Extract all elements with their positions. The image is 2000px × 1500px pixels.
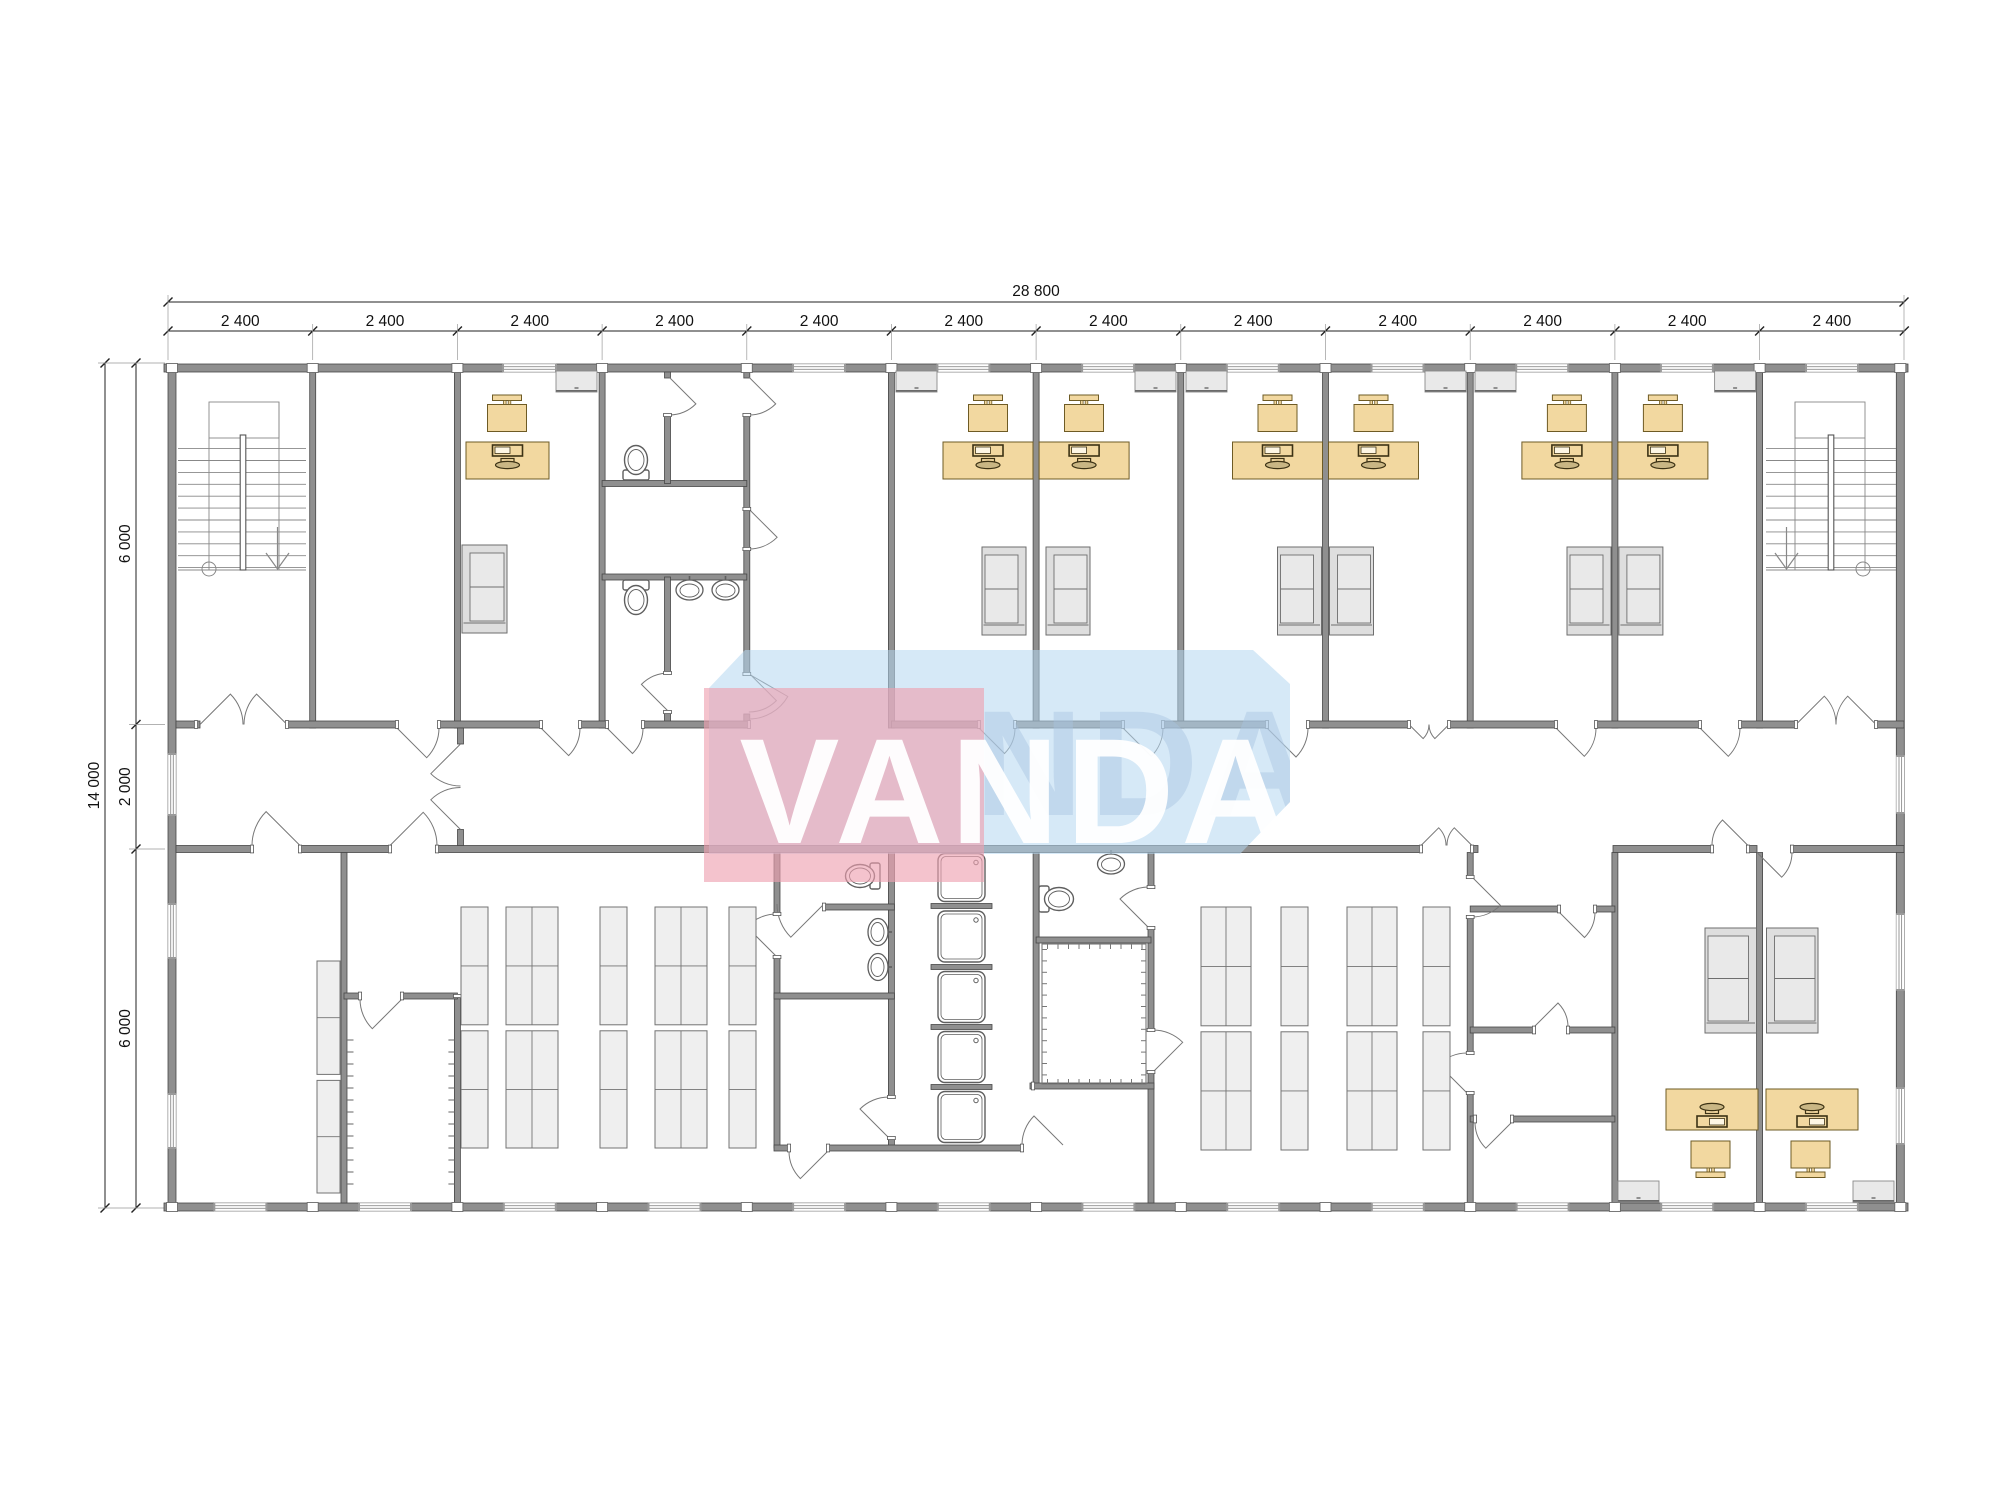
svg-text:2 400: 2 400 [221,313,260,330]
svg-text:2 400: 2 400 [1813,313,1852,330]
svg-text:2 400: 2 400 [655,313,694,330]
svg-text:2 000: 2 000 [117,767,134,806]
svg-text:6 000: 6 000 [117,1009,134,1048]
svg-text:2 400: 2 400 [1523,313,1562,330]
svg-text:2 400: 2 400 [944,313,983,330]
svg-text:6 000: 6 000 [117,524,134,563]
svg-text:2 400: 2 400 [1089,313,1128,330]
svg-text:2 400: 2 400 [510,313,549,330]
svg-text:2 400: 2 400 [1234,313,1273,330]
svg-text:2 400: 2 400 [1378,313,1417,330]
svg-text:2 400: 2 400 [1668,313,1707,330]
svg-text:2 400: 2 400 [800,313,839,330]
svg-text:2 400: 2 400 [366,313,405,330]
svg-text:28 800: 28 800 [1012,283,1060,300]
svg-text:VANDA: VANDA [739,707,1296,875]
svg-text:14 000: 14 000 [86,761,103,809]
